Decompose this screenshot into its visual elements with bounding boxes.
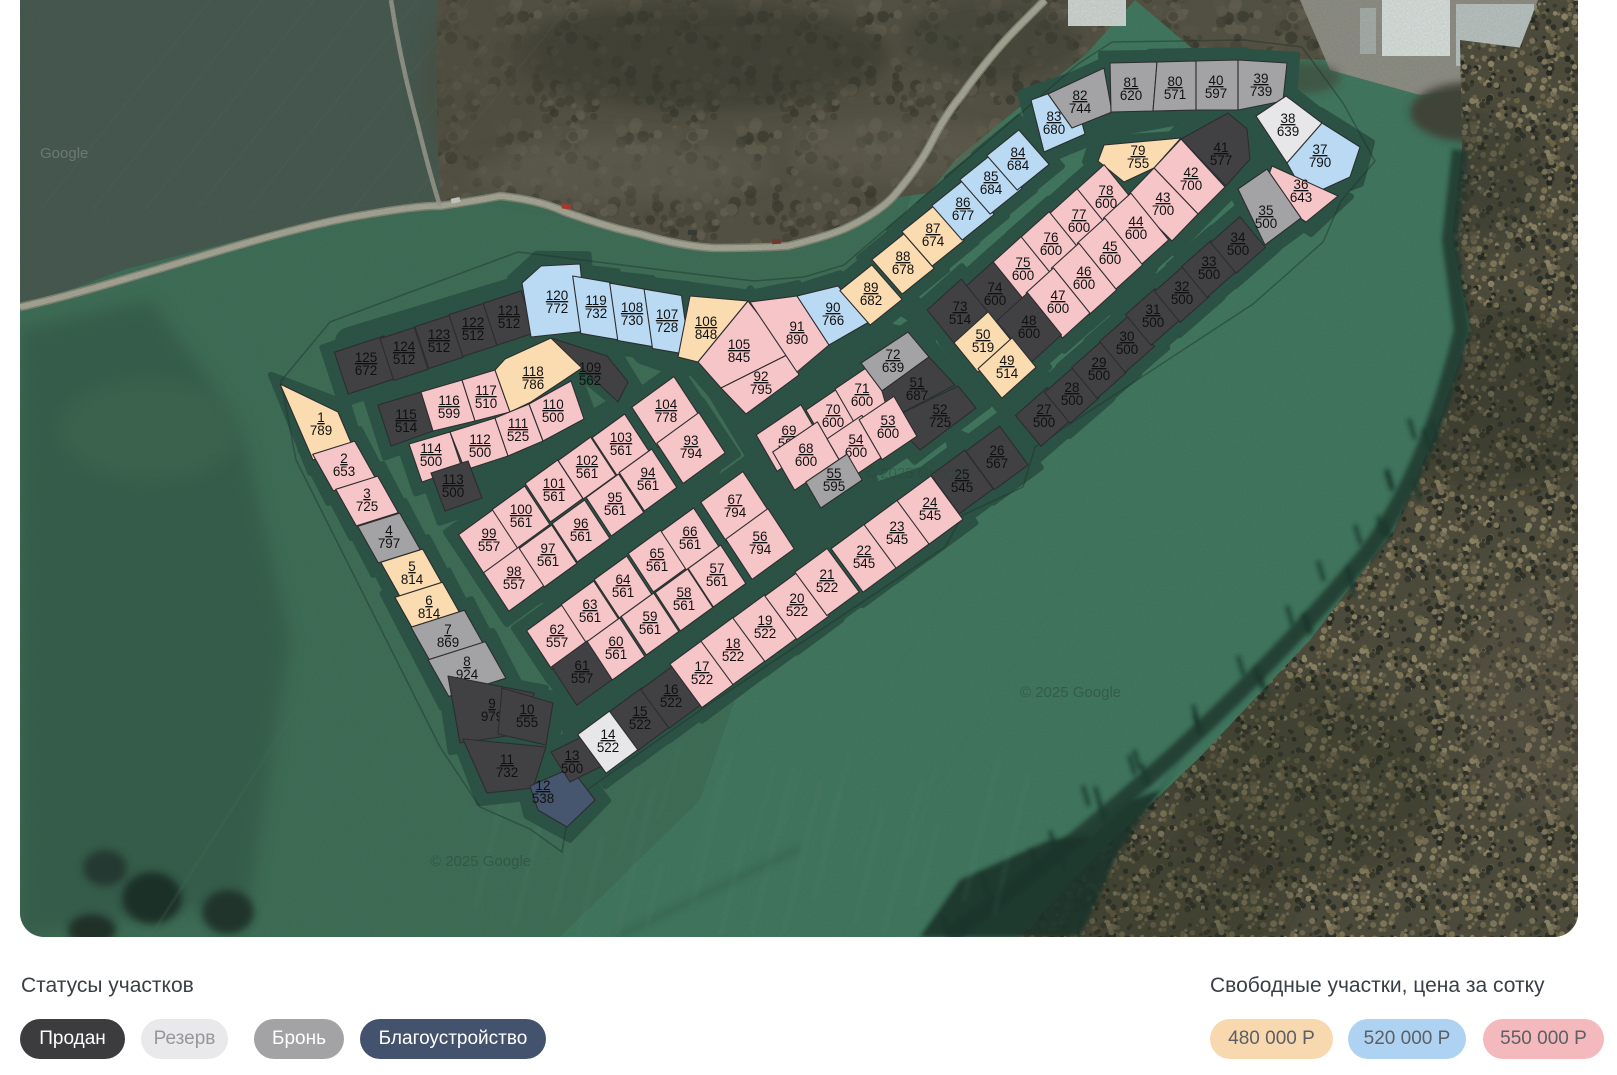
svg-text:100561: 100561 (510, 502, 532, 530)
svg-text:© 2025 Google: © 2025 Google (430, 853, 531, 870)
svg-text:116599: 116599 (438, 393, 460, 421)
svg-text:112500: 112500 (469, 432, 491, 460)
svg-text:104778: 104778 (655, 397, 678, 425)
svg-text:© 2025 Google: © 2025 Google (865, 465, 966, 482)
svg-text:107728: 107728 (656, 307, 678, 335)
svg-text:120772: 120772 (546, 288, 568, 316)
svg-text:113500: 113500 (442, 472, 464, 500)
svg-text:122512: 122512 (462, 315, 484, 343)
svg-text:108730: 108730 (621, 300, 643, 328)
svg-text:101561: 101561 (543, 476, 565, 504)
svg-text:121512: 121512 (498, 303, 520, 331)
svg-text:© 2025 Google: © 2025 Google (1020, 684, 1121, 701)
svg-text:111525: 111525 (507, 416, 529, 444)
svg-text:102561: 102561 (576, 453, 598, 481)
svg-text:115514: 115514 (395, 407, 418, 435)
svg-text:125672: 125672 (355, 350, 377, 378)
svg-text:103561: 103561 (610, 430, 632, 458)
svg-text:Google: Google (40, 145, 88, 162)
svg-text:117510: 117510 (475, 383, 497, 411)
svg-text:114500: 114500 (420, 441, 442, 469)
svg-text:123512: 123512 (428, 327, 450, 355)
svg-text:124512: 124512 (393, 339, 416, 367)
svg-text:118786: 118786 (522, 364, 544, 392)
svg-text:119732: 119732 (585, 293, 607, 321)
svg-text:105845: 105845 (728, 337, 750, 365)
svg-text:110500: 110500 (542, 397, 564, 425)
svg-text:106848: 106848 (695, 314, 717, 342)
svg-text:109562: 109562 (579, 360, 601, 388)
